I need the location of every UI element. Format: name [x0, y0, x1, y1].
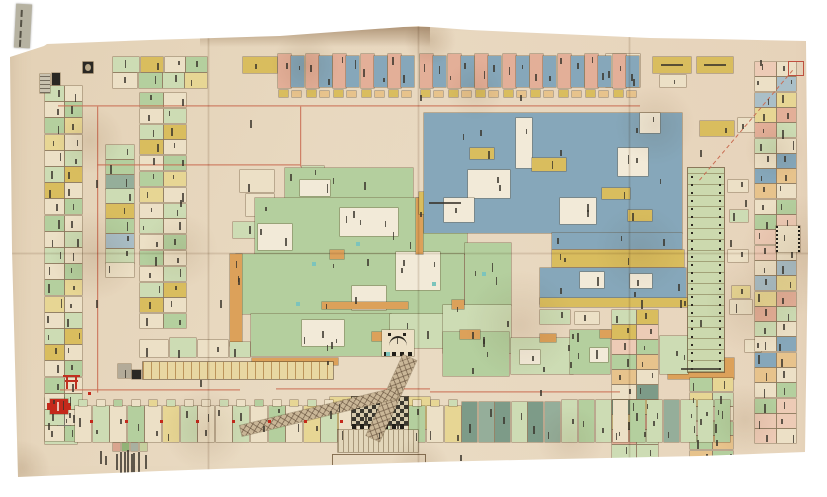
age-stain: [705, 255, 805, 355]
photograph: [0, 0, 827, 497]
age-stain: [745, 120, 805, 180]
age-stain: [0, 440, 50, 496]
age-stain: [465, 270, 575, 380]
edge-stain-band: [200, 27, 430, 47]
map-paper: [0, 0, 827, 497]
tag-kanji-mark: [19, 31, 21, 38]
age-stain: [142, 212, 218, 288]
age-stain: [595, 205, 685, 295]
age-stain: [740, 195, 827, 315]
age-stain: [536, 406, 604, 474]
age-stain: [50, 210, 140, 300]
catalog-tag: [14, 4, 32, 49]
fold-crease: [0, 252, 827, 255]
fold-crease: [207, 0, 210, 497]
age-stain: [390, 438, 450, 497]
age-stain: [709, 384, 781, 456]
tag-kanji-mark: [20, 10, 22, 17]
age-stain: [163, 388, 247, 472]
aging-layer: [0, 0, 827, 497]
age-stain: [404, 14, 456, 66]
age-stain: [56, 106, 124, 174]
age-stain: [271, 31, 339, 99]
tag-kanji-mark: [19, 40, 21, 47]
tag-kanji-mark: [20, 20, 22, 27]
fold-crease: [417, 0, 420, 497]
fold-crease: [628, 0, 631, 497]
age-stain: [615, 85, 695, 165]
age-stain: [445, 60, 505, 120]
